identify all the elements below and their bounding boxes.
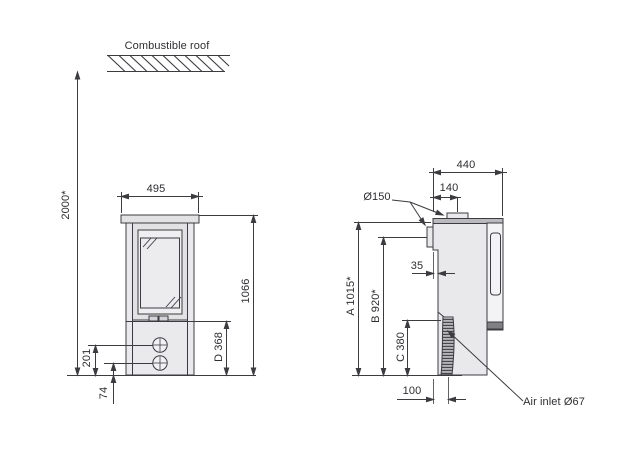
dim-side-a: A 1015* xyxy=(345,276,357,315)
dim-front-201: 201 xyxy=(81,349,93,368)
dim-roof-clearance-geometry xyxy=(75,72,79,375)
combustible-roof-label: Combustible roof xyxy=(125,40,210,52)
dim-front-height: 1066 xyxy=(240,279,252,304)
dim-side-b: B 920* xyxy=(370,289,382,323)
door-handle xyxy=(149,316,168,321)
dim-side-depth: 440 xyxy=(457,159,476,171)
dim-roof-clearance: 2000* xyxy=(60,190,72,219)
dim-side-inlet-offset: 100 xyxy=(403,385,422,397)
stove-dimension-drawing: Combustible roof 2000* 495 1066 D 368 20… xyxy=(0,0,624,460)
air-inlet-label: Air inlet Ø67 xyxy=(523,396,585,408)
dim-front-74: 74 xyxy=(98,387,110,399)
dim-side-rear-step: 35 xyxy=(411,260,423,272)
dim-side-c: C 380 xyxy=(395,332,407,362)
dim-side-flue-offset: 140 xyxy=(440,182,459,194)
dim-side-flue-diameter: Ø150 xyxy=(363,191,390,203)
combustible-roof-hatch xyxy=(107,56,230,72)
dim-front-d: D 368 xyxy=(213,332,225,362)
diagram-canvas xyxy=(0,0,624,460)
dim-front-width: 495 xyxy=(147,183,166,195)
front-view xyxy=(121,215,199,375)
